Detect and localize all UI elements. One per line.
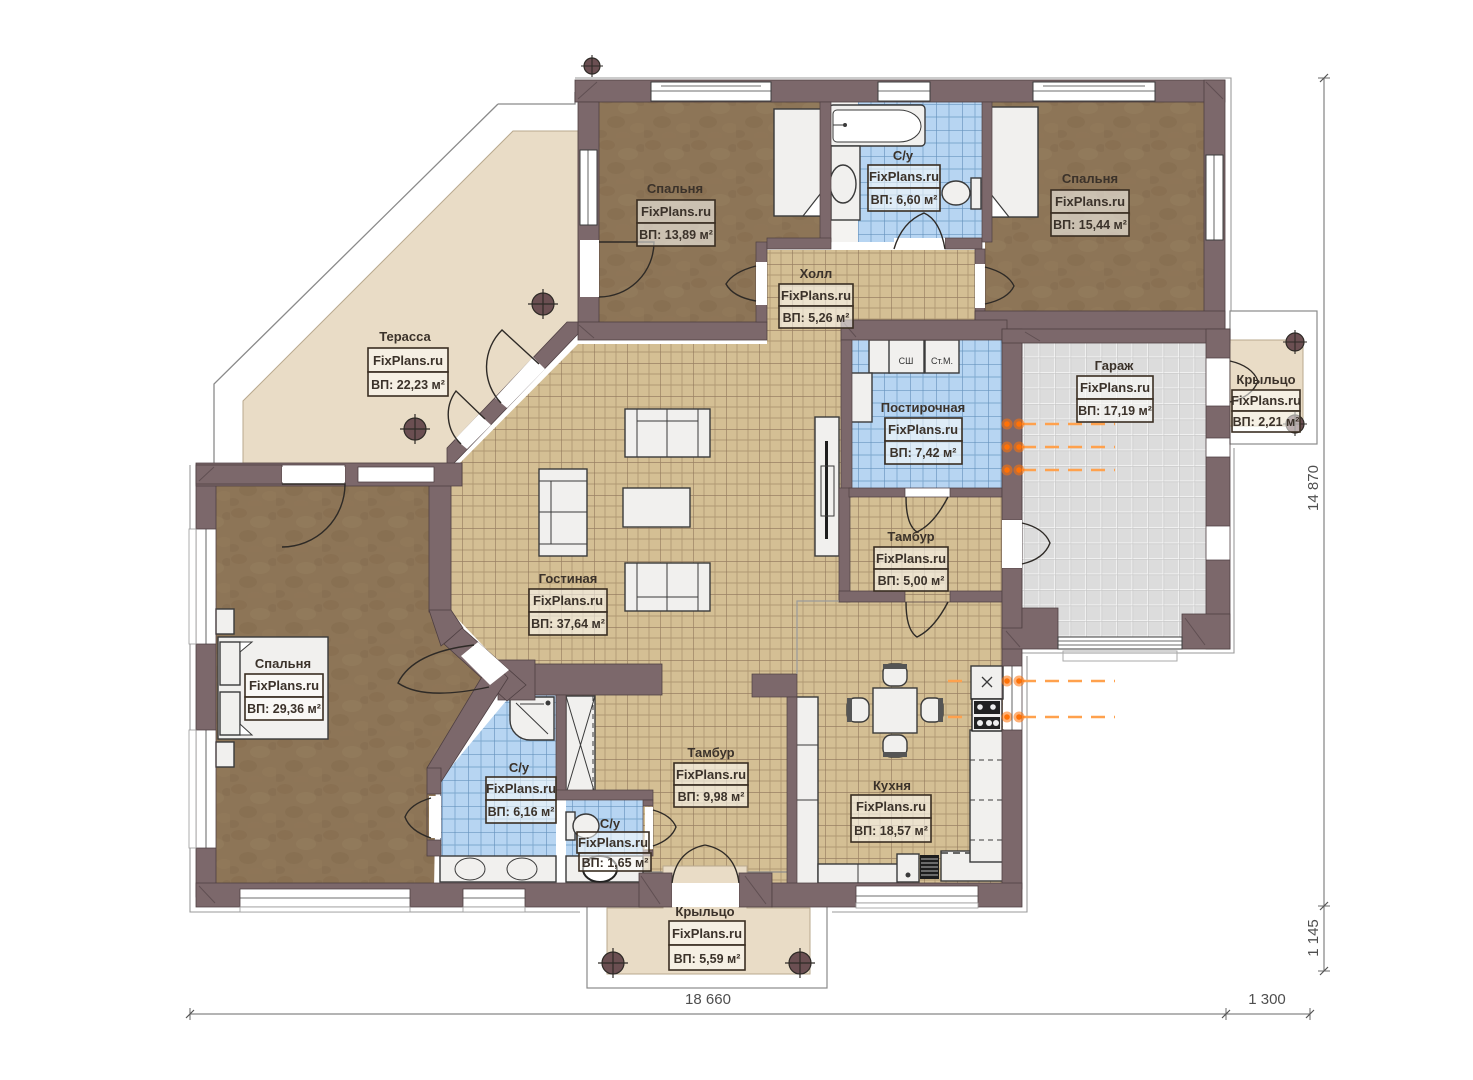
svg-text:Спальня: Спальня [255, 656, 311, 671]
svg-text:ВП: 7,42 м²: ВП: 7,42 м² [890, 446, 957, 460]
svg-text:FixPlans.ru: FixPlans.ru [1231, 393, 1301, 408]
svg-text:ВП: 6,60 м²: ВП: 6,60 м² [871, 193, 938, 207]
svg-text:Гостиная: Гостиная [539, 571, 598, 586]
svg-text:Гараж: Гараж [1095, 358, 1135, 373]
svg-text:Ст.М.: Ст.М. [931, 356, 953, 366]
svg-text:ВП: 1,65 м²: ВП: 1,65 м² [582, 856, 649, 870]
svg-text:FixPlans.ru: FixPlans.ru [533, 593, 603, 608]
svg-text:С/у: С/у [600, 816, 621, 831]
svg-text:FixPlans.ru: FixPlans.ru [781, 288, 851, 303]
svg-text:1 145: 1 145 [1305, 919, 1322, 957]
svg-text:FixPlans.ru: FixPlans.ru [486, 781, 556, 796]
svg-text:ВП: 9,98 м²: ВП: 9,98 м² [678, 790, 745, 804]
svg-text:FixPlans.ru: FixPlans.ru [249, 678, 319, 693]
svg-text:СШ: СШ [899, 356, 914, 366]
svg-text:Холл: Холл [800, 266, 833, 281]
svg-text:Крыльцо: Крыльцо [675, 904, 734, 919]
svg-text:Спальня: Спальня [1062, 171, 1118, 186]
svg-text:FixPlans.ru: FixPlans.ru [856, 799, 926, 814]
svg-text:ВП: 29,36 м²: ВП: 29,36 м² [247, 702, 321, 716]
svg-text:Тамбур: Тамбур [887, 529, 934, 544]
svg-text:FixPlans.ru: FixPlans.ru [1080, 380, 1150, 395]
svg-text:ВП: 5,00 м²: ВП: 5,00 м² [878, 574, 945, 588]
svg-text:Крыльцо: Крыльцо [1236, 372, 1295, 387]
svg-text:ВП: 5,26 м²: ВП: 5,26 м² [783, 311, 850, 325]
svg-text:ВП: 13,89 м²: ВП: 13,89 м² [639, 228, 713, 242]
svg-text:FixPlans.ru: FixPlans.ru [876, 551, 946, 566]
svg-text:14 870: 14 870 [1305, 465, 1322, 511]
svg-text:ВП: 15,44 м²: ВП: 15,44 м² [1053, 218, 1127, 232]
svg-text:ВП: 17,19 м²: ВП: 17,19 м² [1078, 404, 1152, 418]
svg-text:FixPlans.ru: FixPlans.ru [373, 353, 443, 368]
svg-text:FixPlans.ru: FixPlans.ru [578, 835, 648, 850]
svg-text:Спальня: Спальня [647, 181, 703, 196]
svg-text:FixPlans.ru: FixPlans.ru [672, 926, 742, 941]
svg-text:ВП: 5,59 м²: ВП: 5,59 м² [674, 952, 741, 966]
svg-text:FixPlans.ru: FixPlans.ru [676, 767, 746, 782]
svg-text:1 300: 1 300 [1248, 991, 1286, 1008]
svg-text:Терасса: Терасса [379, 329, 431, 344]
svg-text:Кухня: Кухня [873, 778, 911, 793]
svg-text:ВП: 22,23 м²: ВП: 22,23 м² [371, 378, 445, 392]
svg-text:ВП: 6,16 м²: ВП: 6,16 м² [488, 805, 555, 819]
svg-text:FixPlans.ru: FixPlans.ru [869, 169, 939, 184]
svg-text:18 660: 18 660 [685, 991, 731, 1008]
svg-text:С/у: С/у [893, 148, 914, 163]
svg-text:ВП: 37,64 м²: ВП: 37,64 м² [531, 617, 605, 631]
svg-text:С/у: С/у [509, 760, 530, 775]
svg-text:ВП: 2,21 м²: ВП: 2,21 м² [1233, 415, 1300, 429]
svg-text:FixPlans.ru: FixPlans.ru [888, 422, 958, 437]
svg-text:FixPlans.ru: FixPlans.ru [1055, 194, 1125, 209]
svg-text:Постирочная: Постирочная [881, 400, 965, 415]
svg-text:Тамбур: Тамбур [687, 745, 734, 760]
svg-text:ВП: 18,57 м²: ВП: 18,57 м² [854, 824, 928, 838]
svg-text:FixPlans.ru: FixPlans.ru [641, 204, 711, 219]
